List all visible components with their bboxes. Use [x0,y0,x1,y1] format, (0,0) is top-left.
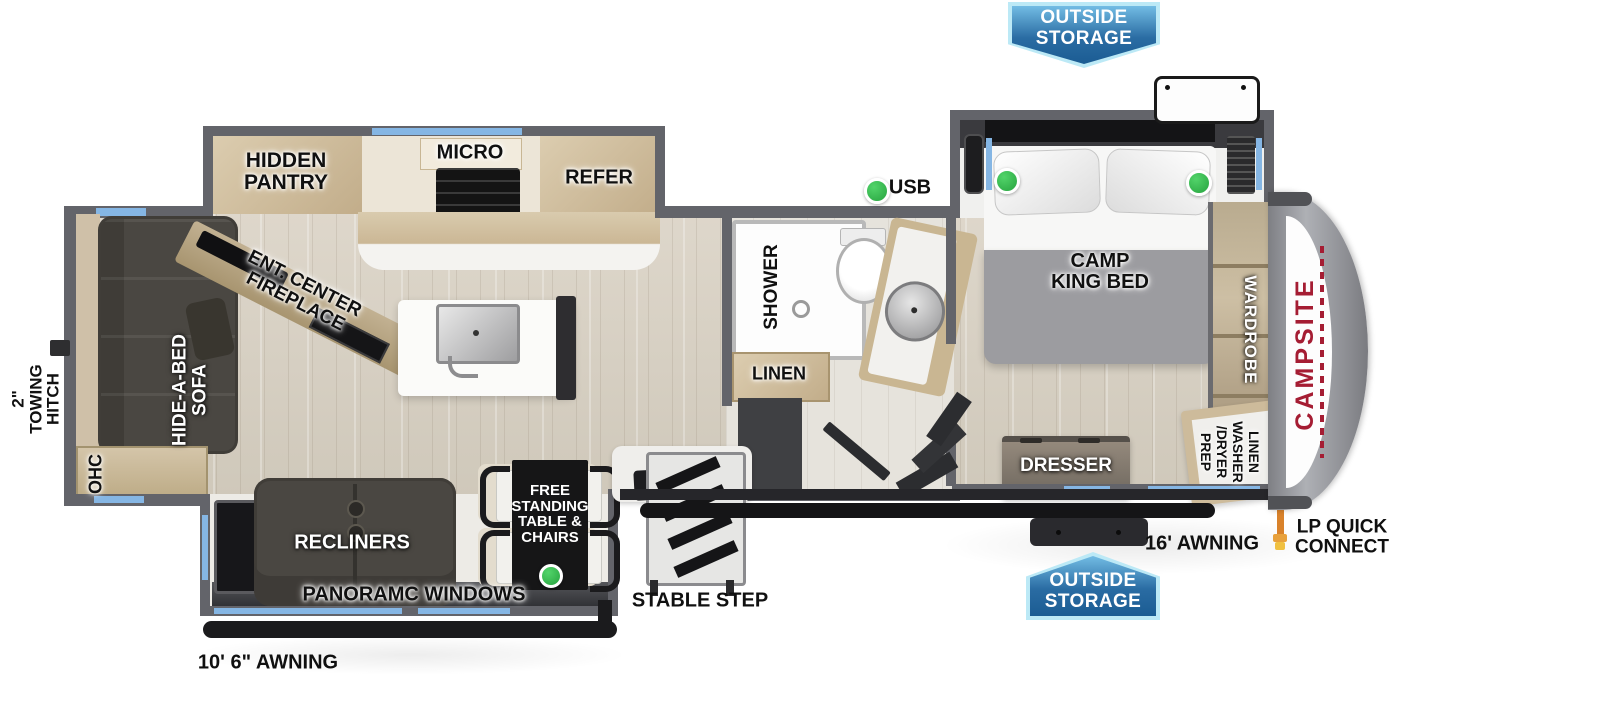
panel-screw-right [1241,85,1246,90]
outside-storage-badge-bottom: OUTSIDE STORAGE [1026,552,1160,620]
bed-window-strip-right [1256,138,1262,190]
front-frame-bar-upper [620,489,1288,500]
bed-side-louver-right [1227,136,1255,194]
cupholder-1 [347,500,365,518]
linen-label: LINEN [752,365,806,384]
label-line: WASHER [1230,421,1246,482]
sink-drain [473,330,479,336]
badge-face: OUTSIDE STORAGE [1030,556,1156,616]
kitchen-slide-window [372,128,522,135]
hidden-pantry-label: HIDDEN PANTRY [244,150,328,194]
dinette-usb-dot [539,564,563,588]
camp-king-bed-label: CAMP KING BED [1051,251,1149,293]
label-line: HIDDEN [244,150,328,172]
front-cap-bottom-edge [1268,496,1312,509]
label-line: KING BED [1051,272,1149,293]
refer-label: REFER [565,168,633,189]
label-line: LINEN [1246,421,1262,482]
bed-side-window-left [964,134,984,194]
usb-label: USB [889,178,931,199]
front-awning-bar [640,503,1215,518]
front-awning-label: 16' AWNING [1145,534,1259,555]
bracket-screw-left [1056,530,1061,535]
label-line: PREP [1198,421,1214,482]
dinette-chair-top-left [480,466,510,528]
shower-drain [792,300,810,318]
label-line: PANTRY [244,172,328,194]
label-line: CONNECT [1295,537,1389,557]
lp-connector-band-1 [1273,534,1287,542]
rear-wall [64,206,76,506]
micro-label: MICRO [437,143,504,164]
bed-window-strip-left [986,138,992,190]
label-line: /DRYER [1214,421,1230,482]
front-cap-top-edge [1268,192,1312,206]
island-end-panel [556,296,576,400]
rv-floorplan-canvas: CAMPSITE OUTSIDE STORAGE OUTSIDE STORAGE… [0,0,1600,706]
kitchen-counter [358,212,660,270]
recliners-label: RECLINERS [294,533,410,554]
hitch-box [50,340,70,356]
badge-line: STORAGE [1045,592,1141,613]
front-awning-bracket [1030,518,1148,546]
label-line: STANDING [511,498,588,514]
lp-quick-connect-label: LP QUICK CONNECT [1295,517,1389,557]
top-wall-mid-segment [655,206,960,218]
wardrobe-label: WARDROBE [1241,275,1259,384]
rear-top-window [96,208,146,216]
free-standing-table-label: FREE STANDING TABLE & CHAIRS [511,483,588,545]
recliner-slide-window-bottom-1 [214,608,402,614]
hide-a-bed-sofa-label: HIDE-A-BED SOFA [170,334,210,446]
headboard-exterior-panel [1154,76,1260,124]
label-line: CAMP [1051,251,1149,272]
badge-face: OUTSIDE STORAGE [1012,6,1156,64]
rear-awning-connector [598,600,612,626]
dresser-label: DRESSER [1020,456,1112,476]
dinette-chair-bottom-right [590,530,620,592]
stable-step-label: STABLE STEP [632,591,768,612]
front-cap-brand-microtext [1320,246,1324,458]
bed-usb-dot-left [994,168,1020,194]
label-line: HITCH [45,364,63,434]
stable-step-tread-4 [673,540,738,578]
recliner-slide-window-bottom-2 [418,608,510,614]
bath-wall-left [722,214,732,406]
label-line: TOWING [27,364,45,434]
label-line: 2" [9,364,27,434]
dresser-handle-left [1020,438,1042,443]
washer-dryer-prep-label: LINEN WASHER /DRYER PREP [1198,421,1262,482]
label-line: SOFA [190,334,210,446]
rear-awning-label: 10' 6" AWNING [198,653,338,674]
label-line: LP QUICK [1295,517,1389,537]
ohc-label: OHC [87,454,106,494]
island-faucet [448,356,478,378]
rear-awning-bar [203,621,617,638]
island-sink [436,304,520,364]
kitchen-slide-wall-left [203,126,213,218]
label-line: TABLE & [511,514,588,530]
panoramic-windows-label: PANORAMC WINDOWS [303,585,526,606]
towing-hitch-label: 2" TOWING HITCH [9,364,62,434]
bedroom-slide-wall-left [950,110,960,218]
bath-bedroom-wall-upper [946,214,956,344]
badge-line: OUTSIDE [1049,571,1136,592]
bracket-screw-right [1116,530,1121,535]
dresser-handle-right [1078,438,1100,443]
badge-line: OUTSIDE [1040,8,1127,29]
stable-step-frame [646,452,746,586]
outside-storage-badge-top: OUTSIDE STORAGE [1008,2,1160,68]
badge-line: STORAGE [1036,29,1132,50]
vanity-sink-drain [911,307,918,314]
label-line: CHAIRS [511,530,588,546]
shower-label: SHOWER [762,244,782,330]
sofa-back-shelf [76,214,100,446]
label-line: HIDE-A-BED [170,334,190,446]
rear-bottom-window [94,496,144,503]
brand-logo-text: CAMPSITE [1292,277,1318,430]
lp-connector-band-2 [1275,542,1285,550]
recliner-slide-window-left [202,515,208,580]
bed-usb-dot-right [1186,170,1212,196]
usb-indicator-dot [864,178,890,204]
panel-screw-left [1165,85,1170,90]
label-line: FREE [511,483,588,499]
kitchen-slide-wall-right [655,126,665,218]
